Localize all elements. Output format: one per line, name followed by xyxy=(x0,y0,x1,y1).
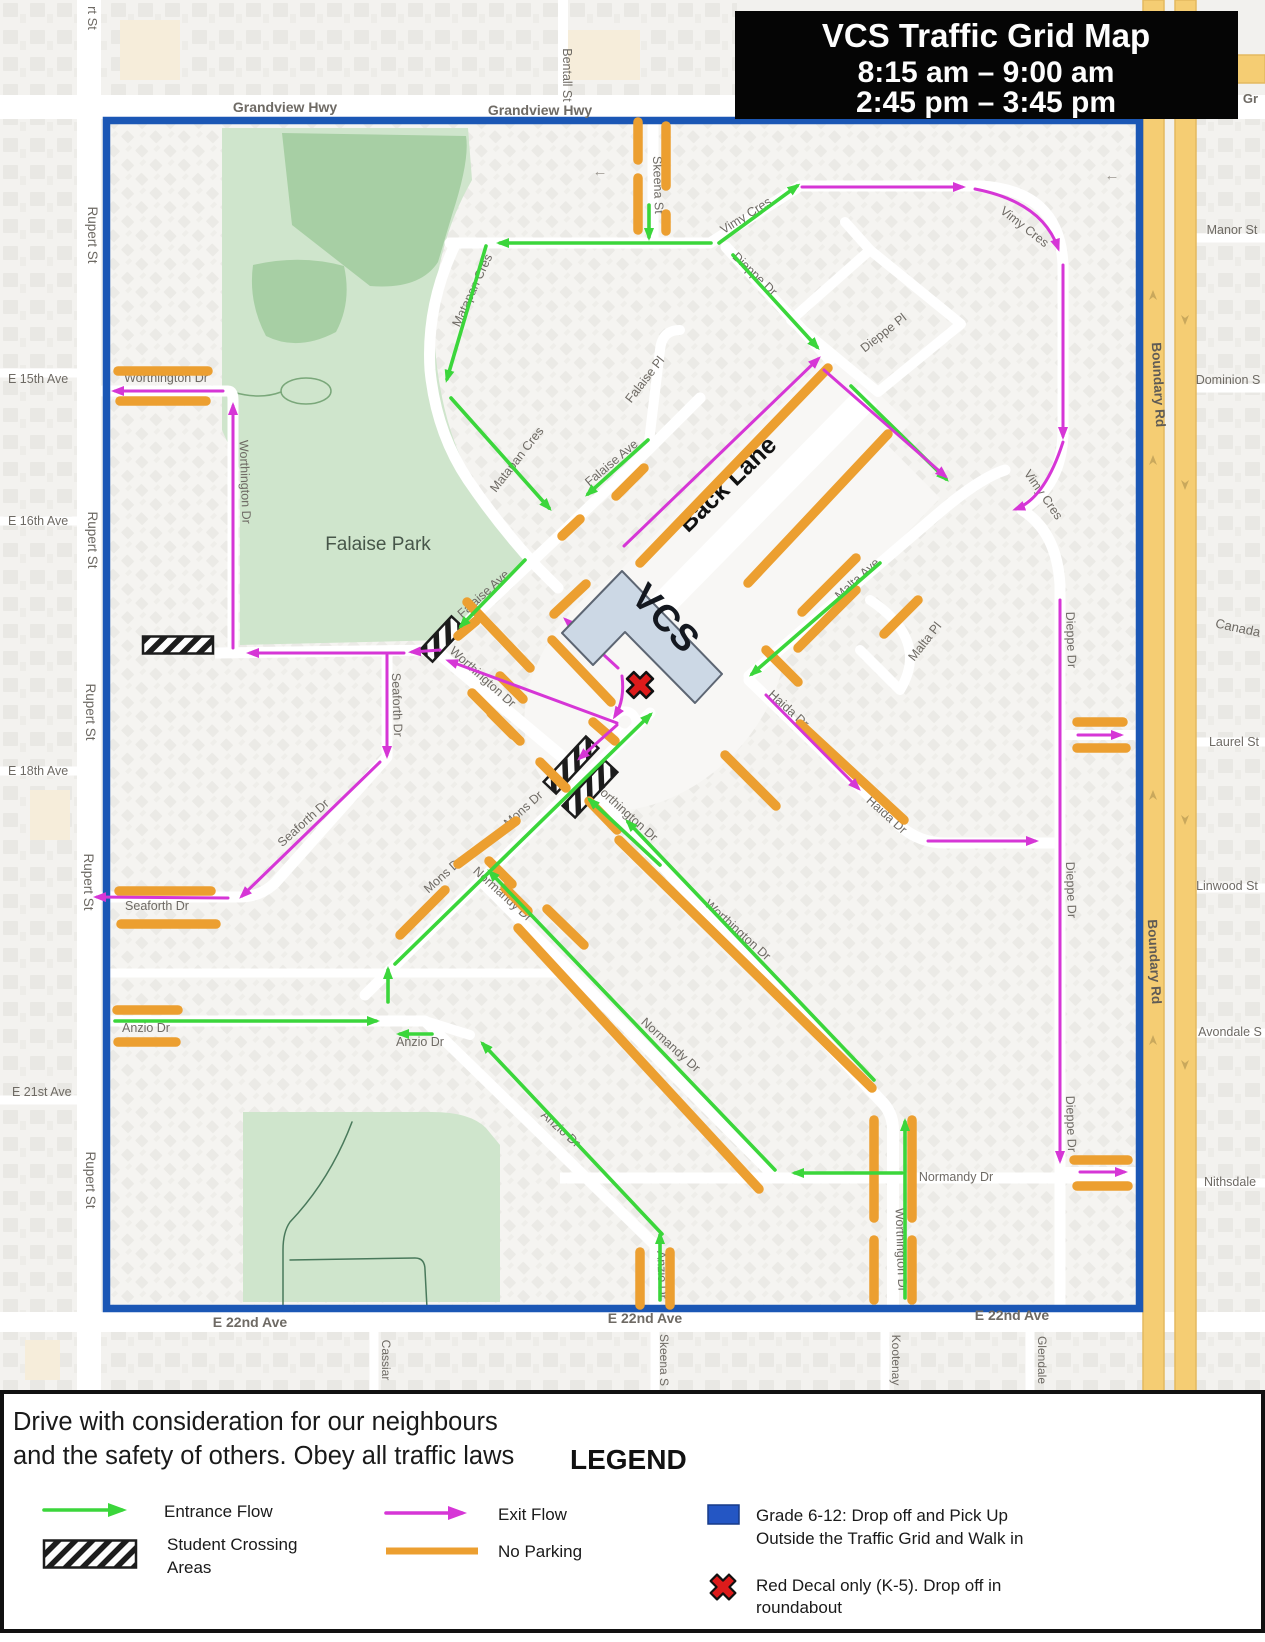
svg-text:Dieppe Dr: Dieppe Dr xyxy=(1063,611,1079,668)
svg-text:Bentall St: Bentall St xyxy=(560,48,574,102)
svg-text:E 18th Ave: E 18th Ave xyxy=(8,764,68,778)
svg-text:Rupert St: Rupert St xyxy=(85,206,100,263)
svg-text:E 22nd Ave: E 22nd Ave xyxy=(975,1307,1050,1323)
svg-text:Cassiar: Cassiar xyxy=(379,1340,393,1381)
svg-text:Dieppe Dr: Dieppe Dr xyxy=(1063,1095,1079,1152)
svg-text:Linwood St: Linwood St xyxy=(1196,879,1258,893)
svg-text:8:15 am – 9:00 am: 8:15 am – 9:00 am xyxy=(858,56,1115,89)
svg-text:Rupert St: Rupert St xyxy=(85,511,100,568)
svg-text:Rupert St: Rupert St xyxy=(83,1151,98,1208)
svg-text:Student Crossing: Student Crossing xyxy=(167,1535,297,1554)
svg-text:Dominion S: Dominion S xyxy=(1196,373,1261,387)
svg-text:roundabout: roundabout xyxy=(756,1598,842,1617)
svg-text:Grade 6-12: Drop off and Pick: Grade 6-12: Drop off and Pick Up xyxy=(756,1506,1008,1525)
svg-text:Anzio Dr: Anzio Dr xyxy=(122,1021,170,1035)
svg-text:Drive with consideration for o: Drive with consideration for our neighbo… xyxy=(13,1408,498,1436)
svg-text:Normandy Dr: Normandy Dr xyxy=(919,1170,993,1184)
svg-text:rt St: rt St xyxy=(85,6,100,30)
svg-text:2:45 pm – 3:45 pm: 2:45 pm – 3:45 pm xyxy=(856,86,1116,119)
svg-text:Dieppe Dr: Dieppe Dr xyxy=(1063,861,1079,918)
svg-text:Areas: Areas xyxy=(167,1558,211,1577)
svg-text:E 22nd Ave: E 22nd Ave xyxy=(608,1310,683,1326)
svg-text:Worthington Dr: Worthington Dr xyxy=(237,440,254,524)
svg-text:←: ← xyxy=(593,163,608,180)
svg-text:Avondale S: Avondale S xyxy=(1198,1025,1262,1039)
svg-text:E 16th Ave: E 16th Ave xyxy=(8,514,68,528)
svg-text:Grandview Hwy: Grandview Hwy xyxy=(233,99,337,115)
svg-text:Rupert St: Rupert St xyxy=(83,683,98,740)
svg-text:Kootenay: Kootenay xyxy=(889,1335,903,1386)
svg-text:Anzio Dr: Anzio Dr xyxy=(396,1035,444,1049)
svg-text:Grandview Hwy: Grandview Hwy xyxy=(488,102,592,118)
svg-text:Nithsdale: Nithsdale xyxy=(1204,1175,1256,1189)
svg-text:Entrance Flow: Entrance Flow xyxy=(164,1502,273,1521)
svg-text:Laurel St: Laurel St xyxy=(1209,735,1260,749)
svg-text:Falaise Park: Falaise Park xyxy=(325,534,431,555)
svg-text:Seaforth Dr: Seaforth Dr xyxy=(125,899,189,913)
svg-text:Seaforth Dr: Seaforth Dr xyxy=(389,673,405,737)
svg-text:E 15th Ave: E 15th Ave xyxy=(8,372,68,386)
svg-text:Outside the Traffic Grid and W: Outside the Traffic Grid and Walk in xyxy=(756,1529,1023,1548)
svg-text:Manor St: Manor St xyxy=(1207,223,1258,237)
svg-text:Red Decal only (K-5). Drop off: Red Decal only (K-5). Drop off in xyxy=(756,1576,1001,1595)
svg-text:Skeena S: Skeena S xyxy=(657,1334,671,1386)
svg-text:Worthington Dr: Worthington Dr xyxy=(893,1208,910,1292)
svg-text:E 21st Ave: E 21st Ave xyxy=(12,1085,72,1099)
svg-text:VCS Traffic Grid Map: VCS Traffic Grid Map xyxy=(822,17,1150,54)
svg-text:No Parking: No Parking xyxy=(498,1542,582,1561)
svg-text:←: ← xyxy=(1105,167,1120,184)
svg-text:and the safety of others. Obey: and the safety of others. Obey all traff… xyxy=(13,1442,514,1470)
svg-text:Rupert St: Rupert St xyxy=(81,853,96,910)
svg-text:Exit Flow: Exit Flow xyxy=(498,1505,568,1524)
svg-text:E 22nd Ave: E 22nd Ave xyxy=(213,1314,288,1330)
svg-text:Gr: Gr xyxy=(1243,91,1258,106)
svg-text:LEGEND: LEGEND xyxy=(570,1444,687,1475)
svg-text:Glendale: Glendale xyxy=(1035,1336,1049,1384)
